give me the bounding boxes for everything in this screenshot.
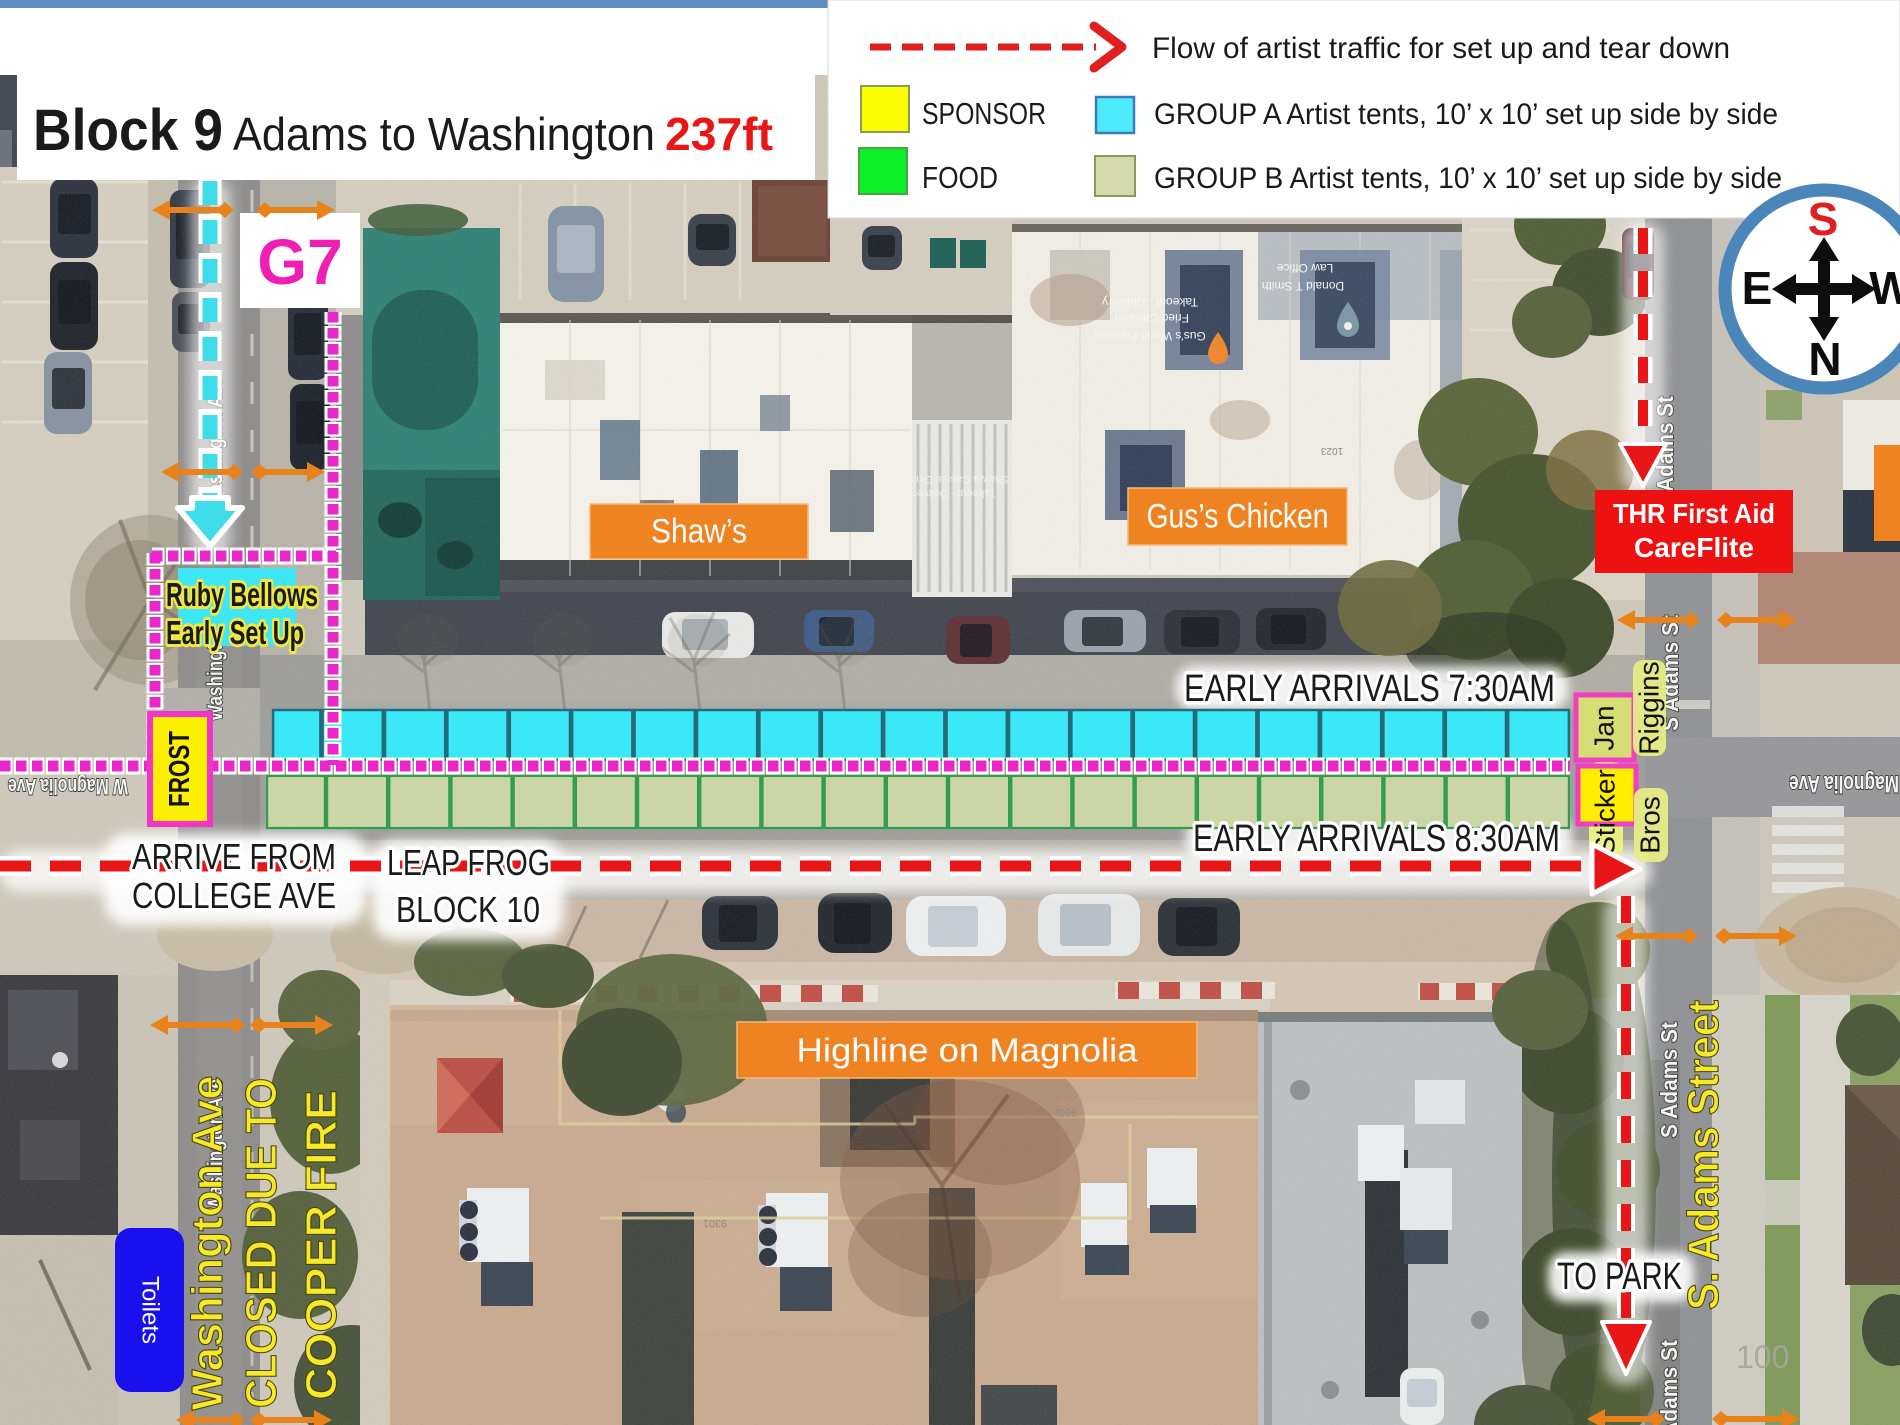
svg-text:EARLY ARRIVALS 7:30AM: EARLY ARRIVALS 7:30AM xyxy=(1184,668,1555,710)
svg-text:FOOD: FOOD xyxy=(922,160,998,195)
svg-text:EARLY ARRIVALS 8:30AM: EARLY ARRIVALS 8:30AM xyxy=(1193,818,1560,860)
svg-text:S. Adams Street: S. Adams Street xyxy=(1679,1000,1728,1310)
svg-text:FROST: FROST xyxy=(164,731,196,807)
svg-text:ARRIVE FROM: ARRIVE FROM xyxy=(132,836,336,877)
svg-text:S: S xyxy=(1808,193,1839,245)
svg-text:Early Set Up: Early Set Up xyxy=(166,614,304,651)
svg-text:Washington Ave: Washington Ave xyxy=(183,1076,232,1411)
svg-text:LEAP FROG: LEAP FROG xyxy=(387,842,550,883)
svg-text:COOPER FIRE: COOPER FIRE xyxy=(297,1090,346,1400)
svg-text:G7: G7 xyxy=(257,226,342,298)
svg-text:SPONSOR: SPONSOR xyxy=(922,96,1046,131)
svg-text:237ft: 237ft xyxy=(665,108,773,160)
svg-text:Highline on Magnolia: Highline on Magnolia xyxy=(797,1032,1139,1069)
svg-text:GROUP B Artist tents, 10’ x 10: GROUP B Artist tents, 10’ x 10’ set up s… xyxy=(1154,162,1782,195)
svg-text:Jan: Jan xyxy=(1589,705,1620,750)
svg-text:BLOCK 10: BLOCK 10 xyxy=(396,889,540,930)
svg-text:TO PARK: TO PARK xyxy=(1557,1256,1682,1298)
svg-text:Shaw’s: Shaw’s xyxy=(651,513,747,551)
svg-text:Flow of artist traffic for set: Flow of artist traffic for set up and te… xyxy=(1152,32,1730,65)
svg-text:COLLEGE AVE: COLLEGE AVE xyxy=(132,875,336,916)
svg-text:Toilets: Toilets xyxy=(137,1276,164,1344)
svg-text:Bros: Bros xyxy=(1635,796,1666,854)
svg-text:Sticker: Sticker xyxy=(1590,769,1621,855)
svg-text:THR First Aid: THR First Aid xyxy=(1613,498,1775,529)
svg-text:W: W xyxy=(1869,262,1900,314)
svg-text:Block 9: Block 9 xyxy=(33,98,223,163)
svg-text:CLOSED DUE TO: CLOSED DUE TO xyxy=(237,1078,286,1408)
svg-text:E: E xyxy=(1742,262,1773,314)
svg-text:Adams to Washington: Adams to Washington xyxy=(233,108,655,160)
svg-text:Ruby Bellows: Ruby Bellows xyxy=(166,576,318,613)
svg-text:GROUP A Artist tents, 10’ x 10: GROUP A Artist tents, 10’ x 10’ set up s… xyxy=(1154,98,1778,131)
svg-text:CareFlite: CareFlite xyxy=(1634,532,1754,563)
svg-text:Gus’s Chicken: Gus’s Chicken xyxy=(1147,498,1329,536)
svg-text:Riggins: Riggins xyxy=(1634,661,1665,754)
svg-text:N: N xyxy=(1808,333,1841,385)
